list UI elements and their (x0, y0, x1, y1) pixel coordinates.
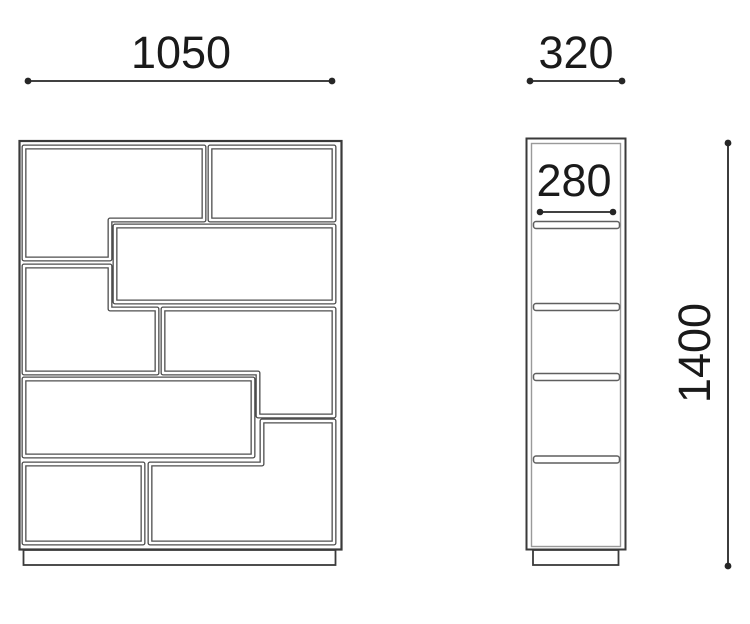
dimension-endpoint-dot (725, 140, 732, 147)
furniture-dimension-drawing: 1050 320 280 (0, 0, 750, 624)
dimension-endpoint-dot (725, 563, 732, 570)
drawing-canvas: 1050 320 280 (0, 0, 750, 624)
front-view: 1050 (20, 27, 342, 565)
side-depth-dimension-label: 320 (538, 27, 613, 78)
compartment-row4-wide (24, 379, 253, 456)
compartment-bottom-left (24, 464, 143, 543)
compartment-row2-wide (115, 226, 334, 302)
side-shelf-slab-4 (534, 456, 620, 463)
height-dimension-label: 1400 (669, 303, 720, 403)
front-width-dimension: 1050 (25, 27, 336, 84)
dimension-endpoint-dot (527, 78, 534, 85)
side-shelf-slab-2 (534, 304, 620, 311)
dimension-endpoint-dot (610, 209, 617, 216)
shelf-depth-dimension-label: 280 (536, 155, 611, 206)
dimension-endpoint-dot (537, 209, 544, 216)
side-depth-dimension: 320 (527, 27, 626, 84)
dimension-endpoint-dot (25, 78, 32, 85)
height-dimension: 1400 (669, 140, 731, 570)
compartment-top-right (210, 147, 334, 220)
front-base-plinth (24, 550, 336, 565)
front-width-dimension-label: 1050 (131, 27, 231, 78)
side-shelf-slab-3 (534, 374, 620, 381)
dimension-endpoint-dot (619, 78, 626, 85)
front-compartments (24, 147, 334, 543)
side-shelf-slab-1 (534, 222, 620, 229)
side-view: 320 280 1400 (527, 27, 732, 569)
side-base-plinth (533, 550, 619, 565)
dimension-endpoint-dot (329, 78, 336, 85)
